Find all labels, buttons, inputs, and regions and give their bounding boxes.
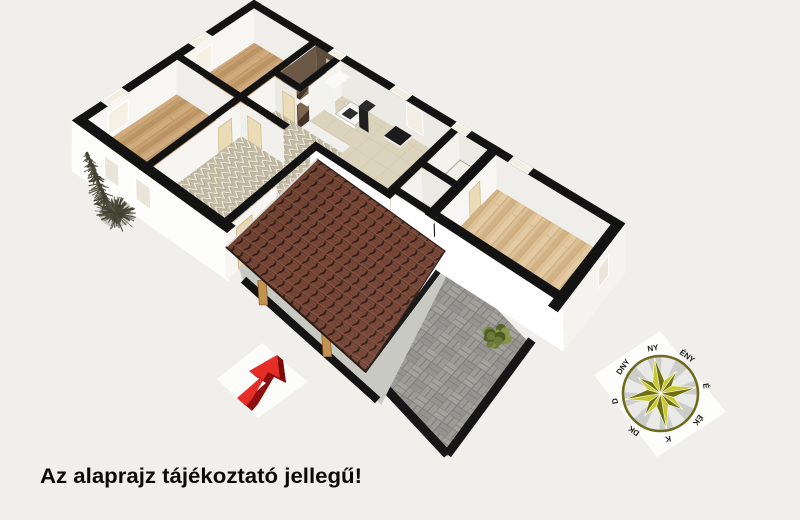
- svg-text:NY: NY: [647, 343, 660, 354]
- svg-text:Az alaprajz tájékoztató jelleg: Az alaprajz tájékoztató jellegű!: [40, 464, 362, 488]
